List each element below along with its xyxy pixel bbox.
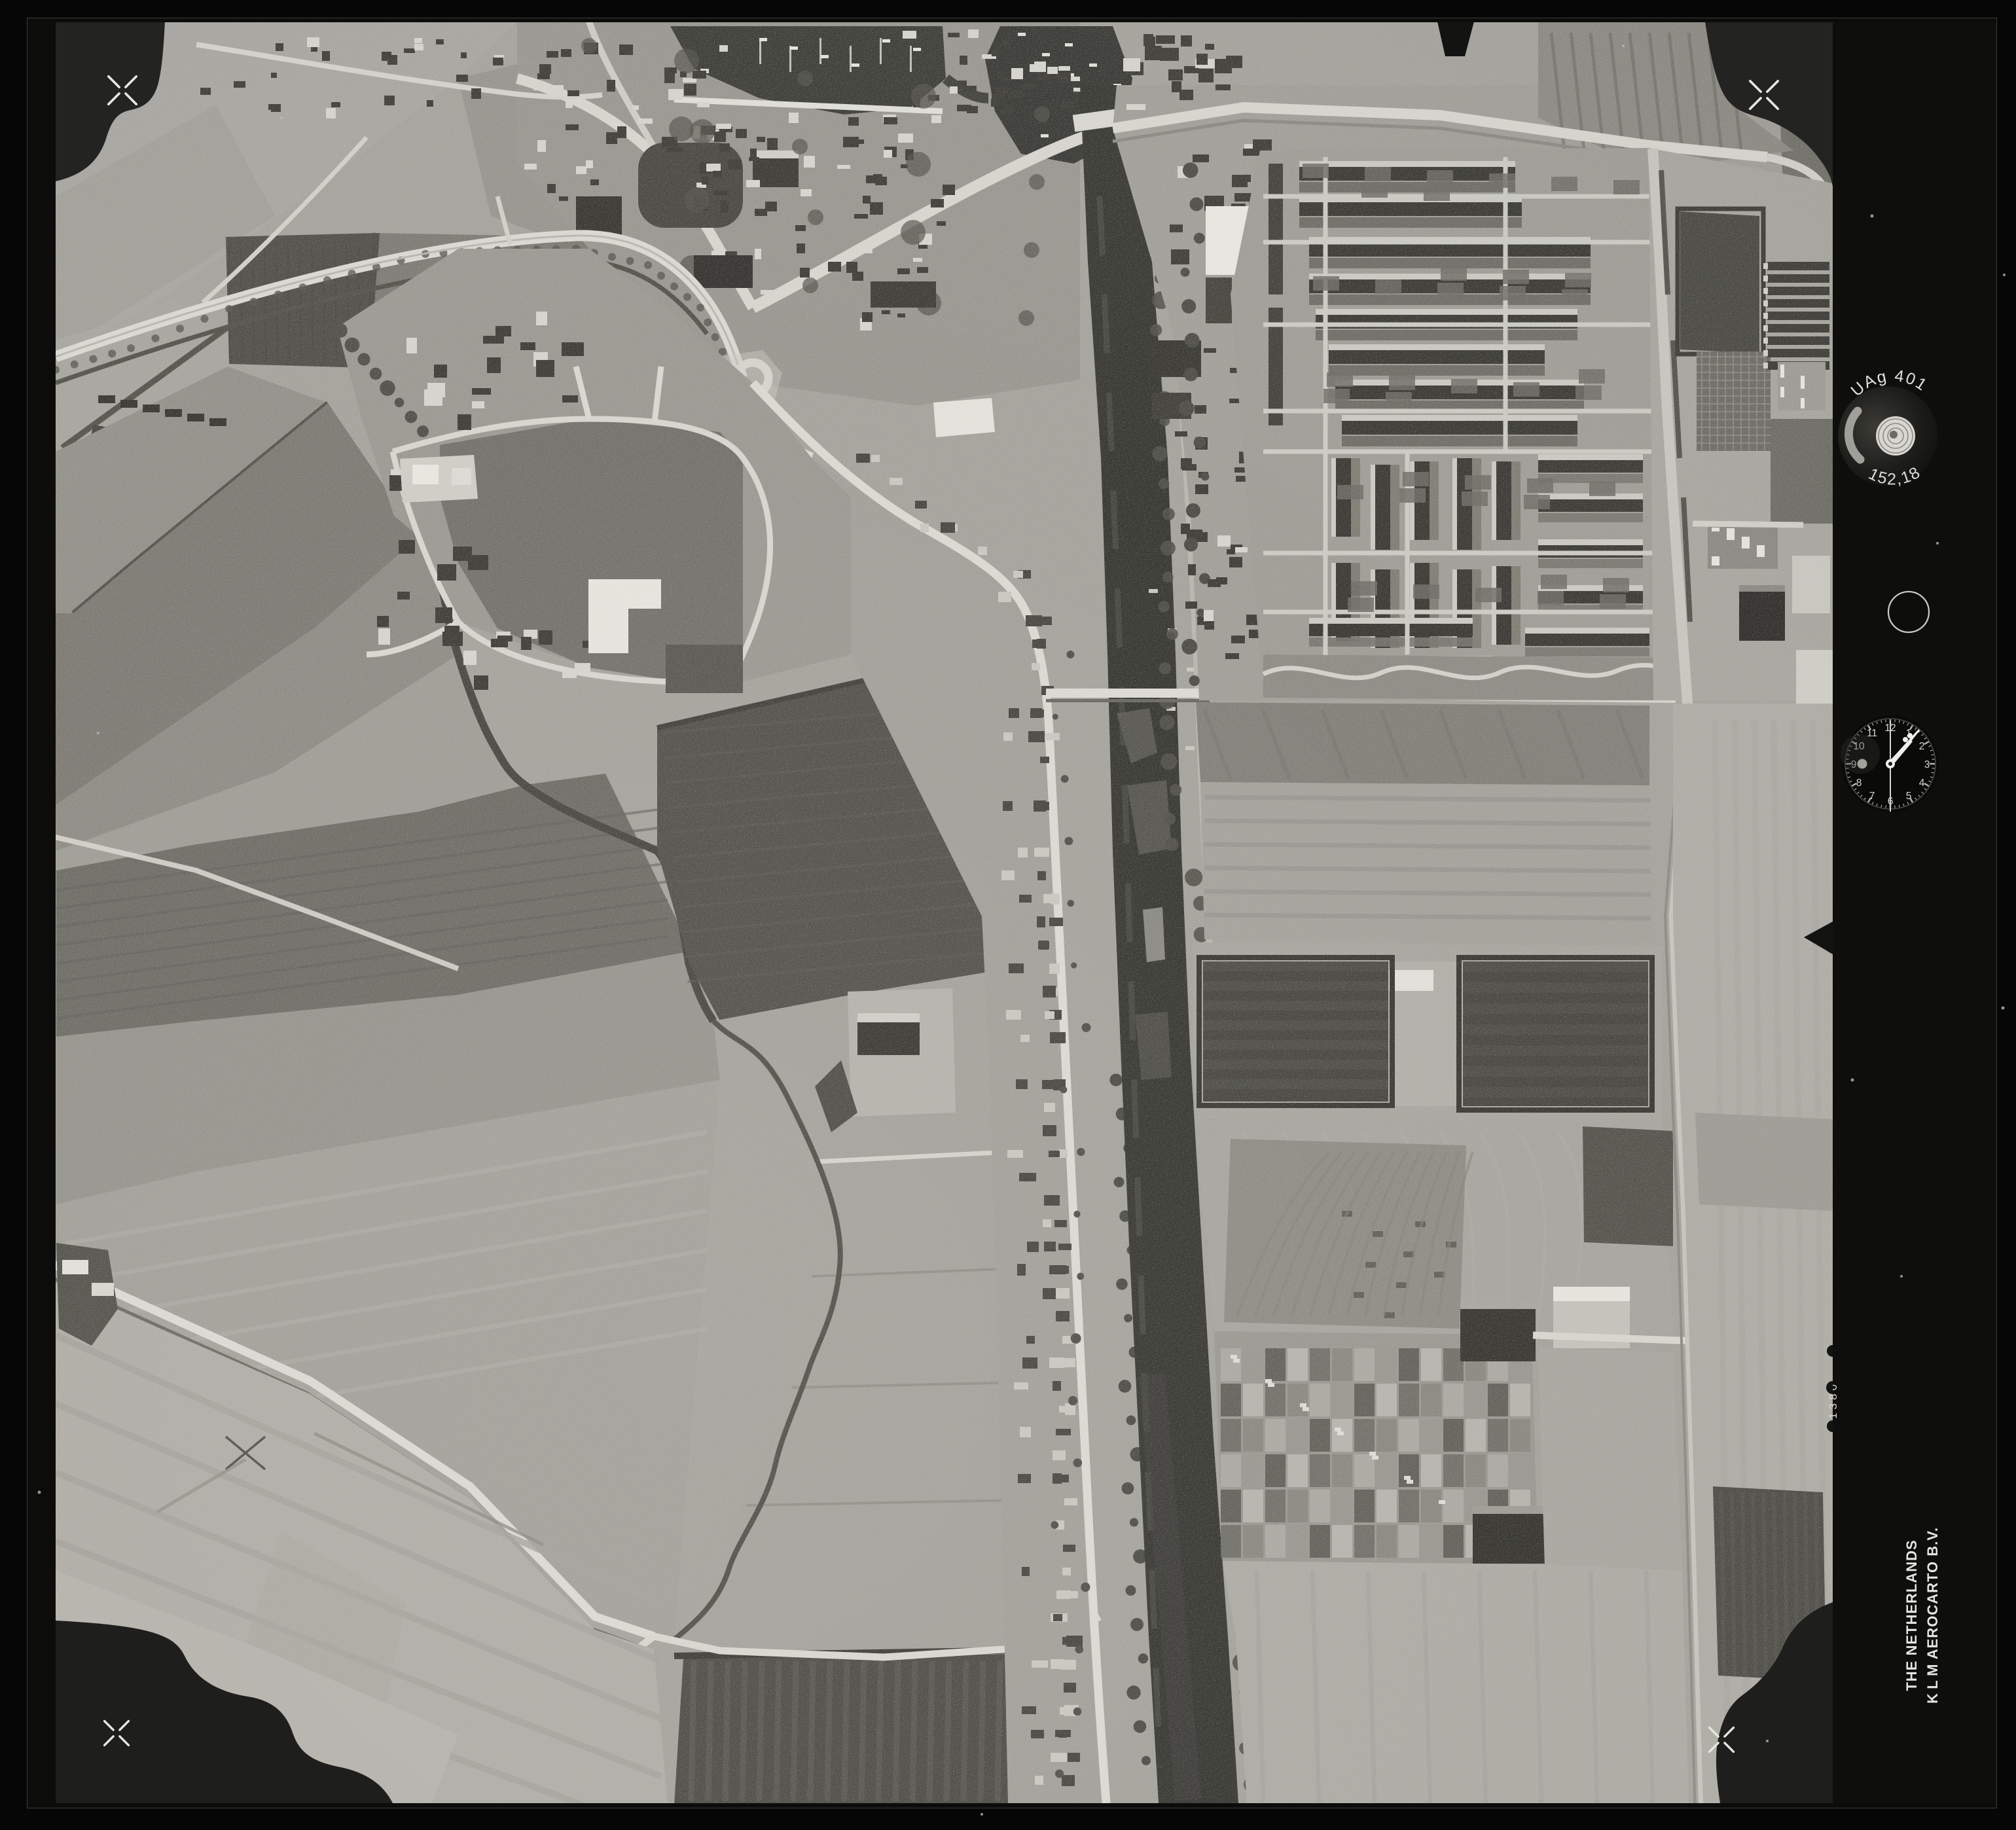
svg-text:7: 7 [1869, 791, 1875, 802]
svg-text:3: 3 [1924, 759, 1930, 770]
svg-text:4: 4 [1919, 778, 1925, 789]
svg-text:8: 8 [1856, 778, 1862, 789]
svg-text:5: 5 [1906, 791, 1912, 802]
svg-text:2: 2 [1919, 741, 1925, 752]
svg-text:K L M AEROCARTO B.V.: K L M AEROCARTO B.V. [1924, 1527, 1941, 1704]
svg-text:THE NETHERLANDS: THE NETHERLANDS [1903, 1539, 1920, 1691]
